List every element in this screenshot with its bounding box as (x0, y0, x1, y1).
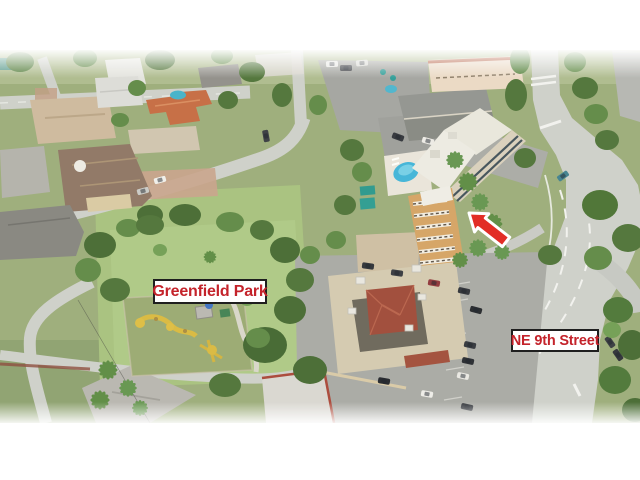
pointer-arrow (455, 200, 525, 255)
aerial-photo (0, 0, 640, 480)
bottom-haze (0, 402, 640, 423)
top-haze (0, 50, 640, 78)
street-label-text: NE 9th Street (511, 333, 599, 349)
pointer-arrow-shape (462, 204, 513, 251)
screenshot-canvas: Greenfield Park NE 9th Street (0, 0, 640, 480)
park-label: Greenfield Park (153, 279, 267, 304)
park-label-text: Greenfield Park (152, 283, 267, 301)
street-label: NE 9th Street (511, 329, 599, 352)
